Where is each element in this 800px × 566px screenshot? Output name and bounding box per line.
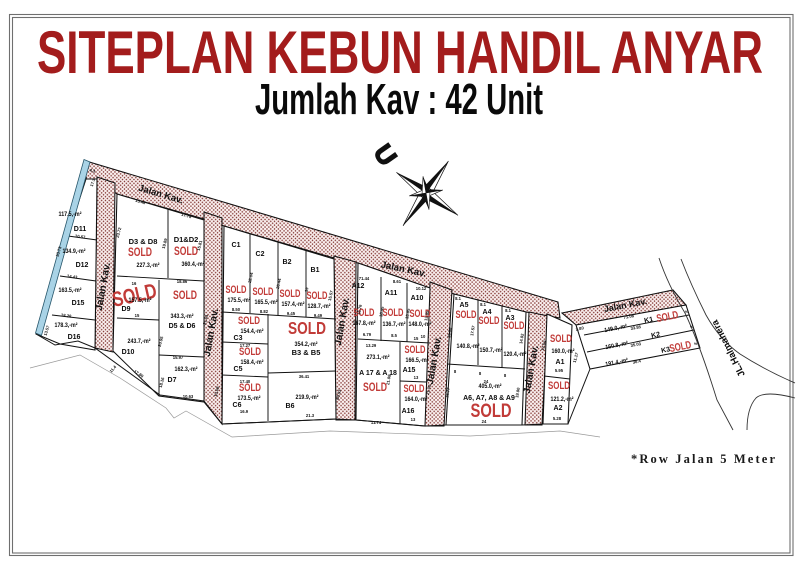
svg-text:16: 16: [132, 281, 137, 286]
svg-text:A10: A10: [411, 295, 424, 302]
svg-text:C1: C1: [232, 242, 241, 249]
svg-text:360.4,-m²: 360.4,-m²: [182, 261, 205, 268]
svg-text:157.5,-m²: 157.5,-m²: [129, 297, 152, 304]
svg-text:8.1: 8.1: [480, 302, 486, 307]
svg-text:SOLD: SOLD: [128, 245, 152, 259]
svg-text:SOLD: SOLD: [471, 400, 512, 422]
svg-text:219.9,-m²: 219.9,-m²: [296, 394, 319, 401]
svg-text:SOLD: SOLD: [307, 290, 328, 302]
svg-text:15: 15: [414, 336, 419, 341]
svg-text:17.40: 17.40: [240, 379, 251, 384]
svg-text:8.1: 8.1: [455, 296, 461, 301]
svg-text:227.3,-m²: 227.3,-m²: [137, 262, 160, 269]
svg-text:A15: A15: [403, 367, 416, 374]
svg-text:71.44: 71.44: [359, 276, 370, 281]
svg-text:SOLD: SOLD: [383, 307, 404, 319]
svg-text:5.95: 5.95: [555, 368, 564, 373]
svg-text:166.5,-m²: 166.5,-m²: [406, 357, 429, 364]
svg-text:10.63: 10.63: [183, 394, 194, 399]
svg-text:8.61: 8.61: [393, 279, 402, 284]
svg-text:C3: C3: [234, 335, 243, 342]
svg-text:154.4,-m²: 154.4,-m²: [241, 328, 264, 335]
svg-text:10.12: 10.12: [416, 286, 427, 291]
svg-text:175.5,-m²: 175.5,-m²: [228, 297, 251, 304]
svg-text:D9: D9: [122, 306, 131, 313]
svg-text:D15: D15: [72, 300, 85, 307]
svg-text:A5: A5: [460, 302, 469, 309]
svg-text:SOLD: SOLD: [174, 244, 198, 258]
svg-text:148.0,-m²: 148.0,-m²: [409, 321, 432, 328]
svg-text:178.3,-m²: 178.3,-m²: [55, 322, 78, 329]
svg-text:165.5,-m²: 165.5,-m²: [255, 299, 278, 306]
svg-text:273.1,-m²: 273.1,-m²: [367, 354, 390, 361]
svg-text:21.3: 21.3: [306, 413, 315, 418]
svg-text:157.4,-m²: 157.4,-m²: [282, 301, 305, 308]
svg-text:405.0,-m²: 405.0,-m²: [479, 383, 502, 390]
svg-text:117.5,-m²: 117.5,-m²: [59, 211, 82, 218]
svg-text:B2: B2: [283, 259, 292, 266]
svg-text:13: 13: [414, 375, 419, 380]
svg-text:120.4,-m²: 120.4,-m²: [504, 351, 527, 358]
svg-text:D11: D11: [74, 226, 87, 233]
svg-text:D1&D2: D1&D2: [174, 235, 199, 244]
svg-text:24: 24: [484, 379, 489, 384]
svg-text:24: 24: [482, 419, 487, 424]
svg-text:13: 13: [411, 417, 416, 422]
svg-text:15: 15: [135, 313, 140, 318]
svg-text:160.0,-m²: 160.0,-m²: [552, 348, 575, 355]
svg-text:A11: A11: [385, 290, 398, 297]
svg-text:A2: A2: [554, 405, 563, 412]
svg-text:158.4,-m²: 158.4,-m²: [241, 359, 264, 366]
svg-text:A1: A1: [556, 359, 565, 366]
svg-text:136.7,-m²: 136.7,-m²: [383, 321, 406, 328]
svg-text:16.9: 16.9: [240, 409, 249, 414]
svg-text:8.50: 8.50: [232, 307, 241, 312]
svg-text:Jumlah Kav : 42 Unit: Jumlah Kav : 42 Unit: [255, 76, 543, 124]
svg-text:C5: C5: [234, 366, 243, 373]
svg-text:SOLD: SOLD: [405, 344, 426, 356]
svg-text:8.5: 8.5: [391, 333, 397, 338]
svg-text:SOLD: SOLD: [456, 309, 477, 321]
svg-text:B3 & B5: B3 & B5: [292, 348, 321, 357]
svg-text:SOLD: SOLD: [173, 288, 197, 302]
svg-text:D7: D7: [168, 377, 177, 384]
svg-text:SOLD: SOLD: [363, 380, 387, 394]
svg-text:A12: A12: [352, 283, 365, 290]
svg-text:A16: A16: [402, 408, 415, 415]
svg-text:8.82: 8.82: [260, 309, 269, 314]
svg-text:SOLD: SOLD: [550, 333, 572, 345]
svg-text:13.29: 13.29: [366, 343, 377, 348]
svg-text:D10: D10: [122, 349, 135, 356]
svg-text:15.97: 15.97: [173, 355, 184, 360]
svg-text:134.9,-m²: 134.9,-m²: [63, 248, 86, 255]
svg-text:9.45: 9.45: [287, 311, 296, 316]
svg-text:D16: D16: [68, 334, 81, 341]
svg-text:354.2,-m²: 354.2,-m²: [295, 341, 318, 348]
svg-text:121.2,-m²: 121.2,-m²: [551, 396, 574, 403]
svg-text:SOLD: SOLD: [280, 288, 301, 300]
svg-text:8.1: 8.1: [505, 308, 511, 313]
svg-text:128.7,-m²: 128.7,-m²: [308, 303, 331, 310]
svg-text:6.79: 6.79: [363, 332, 372, 337]
svg-text:163.5,-m²: 163.5,-m²: [59, 287, 82, 294]
svg-text:SOLD: SOLD: [253, 286, 274, 298]
svg-text:SOLD: SOLD: [548, 380, 570, 392]
svg-text:B6: B6: [286, 403, 295, 410]
svg-text:150.7,-m²: 150.7,-m²: [480, 347, 503, 354]
svg-text:36.41: 36.41: [299, 374, 310, 379]
svg-text:343.3,-m²: 343.3,-m²: [171, 313, 194, 320]
svg-text:164.0,-m²: 164.0,-m²: [405, 396, 428, 403]
svg-text:SOLD: SOLD: [238, 315, 260, 327]
svg-text:243.7,-m²: 243.7,-m²: [128, 338, 151, 345]
svg-text:C2: C2: [256, 251, 265, 258]
svg-text:SOLD: SOLD: [479, 315, 500, 327]
svg-text:D5 & D6: D5 & D6: [169, 323, 196, 330]
svg-text:B1: B1: [311, 267, 320, 274]
svg-text:SOLD: SOLD: [226, 284, 247, 296]
svg-text:9.49: 9.49: [314, 313, 323, 318]
svg-text:10: 10: [421, 334, 426, 339]
svg-text:173.5,-m²: 173.5,-m²: [238, 395, 261, 402]
svg-text:SOLD: SOLD: [288, 318, 326, 338]
svg-text:D12: D12: [76, 262, 89, 269]
svg-text:18.86: 18.86: [177, 279, 188, 284]
svg-text:SOLD: SOLD: [504, 320, 525, 332]
svg-text:140.8,-m²: 140.8,-m²: [457, 343, 480, 350]
svg-text:162.3,-m²: 162.3,-m²: [175, 366, 198, 373]
svg-text:11.74: 11.74: [371, 420, 382, 425]
svg-text:C6: C6: [233, 402, 242, 409]
svg-text:167.8,-m²: 167.8,-m²: [353, 320, 376, 327]
svg-text:17.27: 17.27: [240, 343, 251, 348]
svg-text:SOLD: SOLD: [404, 383, 425, 395]
svg-text:5.28: 5.28: [553, 416, 562, 421]
